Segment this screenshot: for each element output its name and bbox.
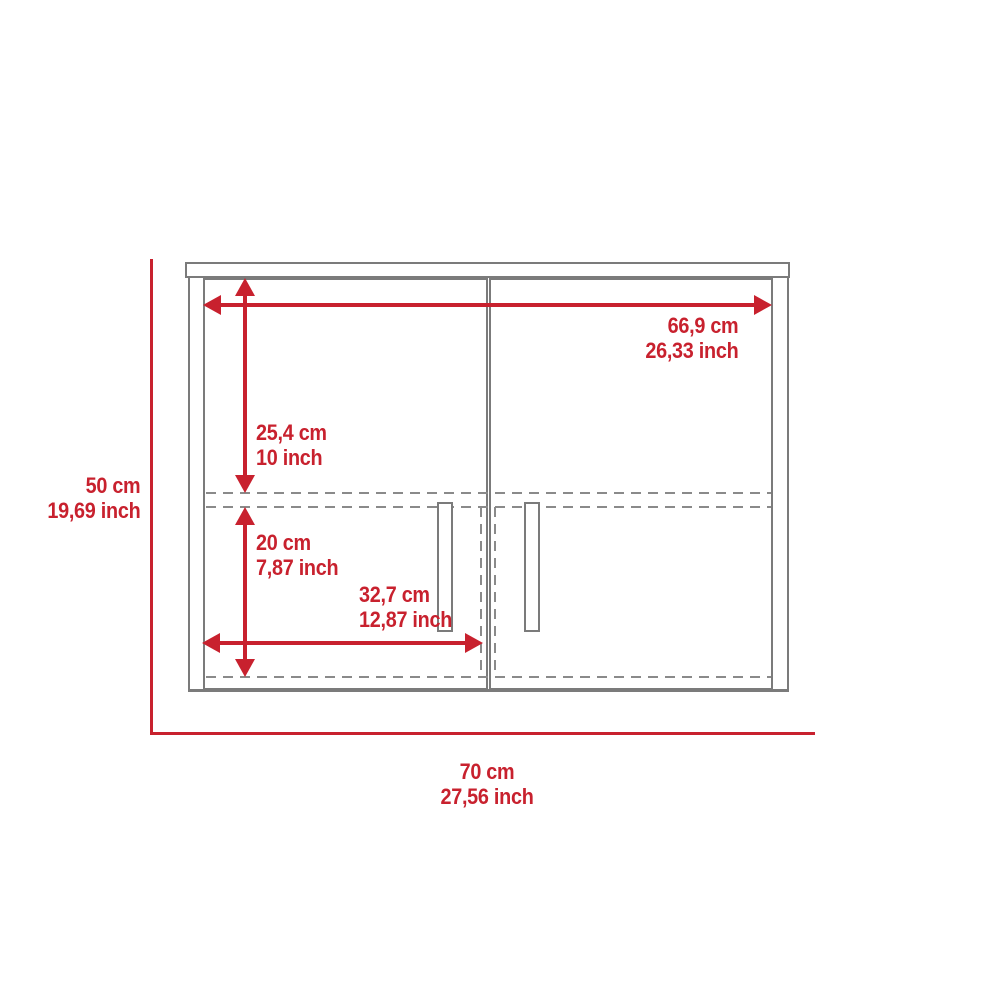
arrow-down-icon [235, 659, 255, 677]
arrow-down-icon [235, 475, 255, 493]
lower-section-label: 20 cm 7,87 inch [256, 530, 338, 580]
shelf-dashed-line-bottom [206, 506, 771, 508]
cabinet-right-side-line [787, 277, 789, 691]
overall-height-cm: 50 cm [47, 473, 140, 498]
door-width-inch: 12,87 inch [359, 607, 452, 632]
overall-width-cm: 70 cm [440, 759, 533, 784]
overall-height-inch: 19,69 inch [47, 498, 140, 523]
door-width-cm: 32,7 cm [359, 582, 452, 607]
lower-section-inch: 7,87 inch [256, 555, 338, 580]
center-dashed-line-right [494, 507, 496, 677]
door-width-label: 32,7 cm 12,87 inch [359, 582, 452, 632]
arrow-up-icon [235, 278, 255, 296]
upper-section-cm: 25,4 cm [256, 420, 327, 445]
upper-section-label: 25,4 cm 10 inch [256, 420, 327, 470]
inner-width-inch: 26,33 inch [645, 338, 738, 363]
overall-height-dimension-line [150, 259, 153, 735]
shelf-dashed-line-top [206, 492, 771, 494]
cabinet-top-panel [185, 262, 790, 278]
arrow-left-icon [202, 633, 220, 653]
upper-section-inch: 10 inch [256, 445, 327, 470]
right-door-handle [524, 502, 540, 632]
overall-height-label: 50 cm 19,69 inch [47, 473, 140, 523]
overall-width-label: 70 cm 27,56 inch [440, 759, 533, 809]
bottom-dashed-line [206, 676, 771, 678]
inner-width-arrow-shaft [218, 303, 756, 307]
door-width-arrow-shaft [217, 641, 468, 645]
inner-width-cm: 66,9 cm [645, 313, 738, 338]
lower-section-cm: 20 cm [256, 530, 338, 555]
arrow-up-icon [235, 507, 255, 525]
upper-height-arrow-shaft [243, 292, 247, 478]
overall-width-dimension-line [150, 732, 815, 735]
cabinet-left-side-line [188, 277, 190, 691]
dimension-diagram: 66,9 cm 26,33 inch 25,4 cm 10 inch 20 cm… [0, 0, 1000, 1000]
inner-width-label: 66,9 cm 26,33 inch [645, 313, 738, 363]
arrow-right-icon [754, 295, 772, 315]
arrow-right-icon [465, 633, 483, 653]
arrow-left-icon [203, 295, 221, 315]
overall-width-inch: 27,56 inch [440, 784, 533, 809]
